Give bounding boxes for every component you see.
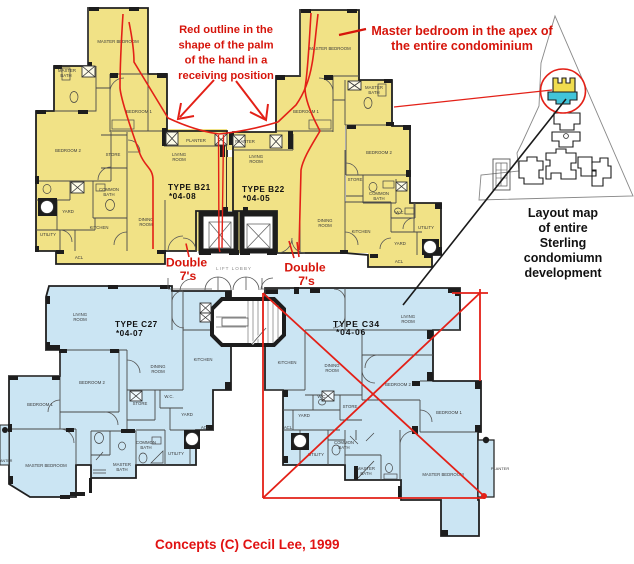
svg-text:ROOM: ROOM [139, 222, 153, 227]
svg-text:KITCHEN: KITCHEN [194, 357, 213, 362]
svg-text:condomiumn: condomiumn [524, 251, 602, 265]
svg-text:Red outline in the: Red outline in the [179, 24, 273, 36]
svg-text:TYPE C27: TYPE C27 [115, 320, 158, 329]
svg-text:Layout map: Layout map [528, 206, 599, 220]
svg-text:MASTER BEDROOM: MASTER BEDROOM [309, 46, 351, 51]
svg-text:W.C.: W.C. [164, 394, 173, 399]
svg-text:receiving position: receiving position [178, 70, 274, 82]
svg-text:W.C.: W.C. [395, 210, 404, 215]
svg-text:Double: Double [166, 256, 208, 270]
svg-text:W.C.: W.C. [317, 394, 326, 399]
svg-text:BEDROOM 1: BEDROOM 1 [27, 402, 53, 407]
svg-text:ACL: ACL [201, 425, 210, 430]
svg-text:shape of the palm: shape of the palm [178, 40, 273, 52]
svg-text:STORE: STORE [348, 177, 363, 182]
svg-text:ROOM: ROOM [401, 319, 415, 324]
svg-text:Sterling: Sterling [540, 236, 587, 250]
svg-text:of the hand in a: of the hand in a [185, 55, 268, 67]
svg-text:BATH: BATH [360, 471, 371, 476]
svg-text:YARD: YARD [298, 413, 310, 418]
svg-text:BATH: BATH [373, 196, 384, 201]
svg-text:KITCHEN: KITCHEN [90, 225, 109, 230]
svg-text:BATH: BATH [338, 445, 349, 450]
svg-text:BEDROOM 2: BEDROOM 2 [79, 380, 105, 385]
svg-text:KITCHEN: KITCHEN [352, 229, 371, 234]
svg-text:PLANTER: PLANTER [235, 139, 255, 144]
svg-text:STORE: STORE [133, 401, 148, 406]
svg-text:Double: Double [284, 261, 326, 275]
svg-text:BATH: BATH [60, 73, 71, 78]
svg-text:BATH: BATH [368, 90, 379, 95]
svg-text:BEDROOM 1: BEDROOM 1 [126, 109, 152, 114]
svg-text:ACL: ACL [284, 425, 293, 430]
svg-text:BEDROOM 2: BEDROOM 2 [366, 150, 392, 155]
svg-text:PLANTER: PLANTER [186, 138, 206, 143]
svg-text:BEDROOM 1: BEDROOM 1 [436, 410, 462, 415]
svg-text:LIFT LOBBY: LIFT LOBBY [216, 266, 252, 271]
svg-text:BEDROOM 1: BEDROOM 1 [293, 109, 319, 114]
svg-text:PLANTER: PLANTER [0, 459, 13, 463]
svg-text:UTILITY: UTILITY [40, 232, 56, 237]
svg-text:BATH: BATH [116, 467, 127, 472]
svg-text:MASTER BEDROOM: MASTER BEDROOM [25, 463, 67, 468]
svg-text:*04-08: *04-08 [169, 192, 196, 201]
svg-text:UTILITY: UTILITY [418, 225, 434, 230]
svg-text:ROOM: ROOM [172, 157, 186, 162]
svg-text:ROOM: ROOM [151, 369, 165, 374]
svg-text:BATH: BATH [140, 445, 151, 450]
svg-text:BEDROOM 2: BEDROOM 2 [55, 148, 81, 153]
svg-text:7's: 7's [180, 269, 197, 283]
svg-text:TYPE B22: TYPE B22 [242, 185, 285, 194]
svg-text:STORE: STORE [343, 404, 358, 409]
svg-text:BATH: BATH [103, 192, 114, 197]
svg-text:UTILITY: UTILITY [168, 451, 184, 456]
svg-text:PLANTER: PLANTER [491, 466, 510, 471]
svg-text:ROOM: ROOM [325, 368, 339, 373]
svg-text:the entire condominium: the entire condominium [391, 39, 533, 53]
svg-text:*04-07: *04-07 [116, 329, 143, 338]
svg-text:ROOM: ROOM [249, 159, 263, 164]
svg-text:ACL: ACL [395, 259, 404, 264]
svg-text:7's: 7's [298, 274, 315, 288]
svg-text:TYPE B21: TYPE B21 [168, 183, 211, 192]
svg-text:ACL: ACL [75, 255, 84, 260]
svg-text:ROOM: ROOM [73, 317, 87, 322]
svg-text:YARD: YARD [394, 241, 406, 246]
svg-text:YARD: YARD [62, 209, 74, 214]
svg-text:KITCHEN: KITCHEN [278, 360, 297, 365]
svg-text:STORE: STORE [106, 152, 121, 157]
svg-text:*04-06: *04-06 [336, 327, 366, 337]
svg-text:Master bedroom in the apex of: Master bedroom in the apex of [371, 24, 553, 38]
svg-text:Concepts (C) Cecil Lee, 1999: Concepts (C) Cecil Lee, 1999 [155, 537, 340, 552]
svg-text:YARD: YARD [181, 412, 193, 417]
svg-text:ROOM: ROOM [318, 223, 332, 228]
svg-text:of entire: of entire [538, 221, 587, 235]
svg-text:*04-05: *04-05 [243, 194, 270, 203]
svg-text:BEDROOM 2: BEDROOM 2 [385, 382, 411, 387]
svg-text:development: development [524, 266, 602, 280]
